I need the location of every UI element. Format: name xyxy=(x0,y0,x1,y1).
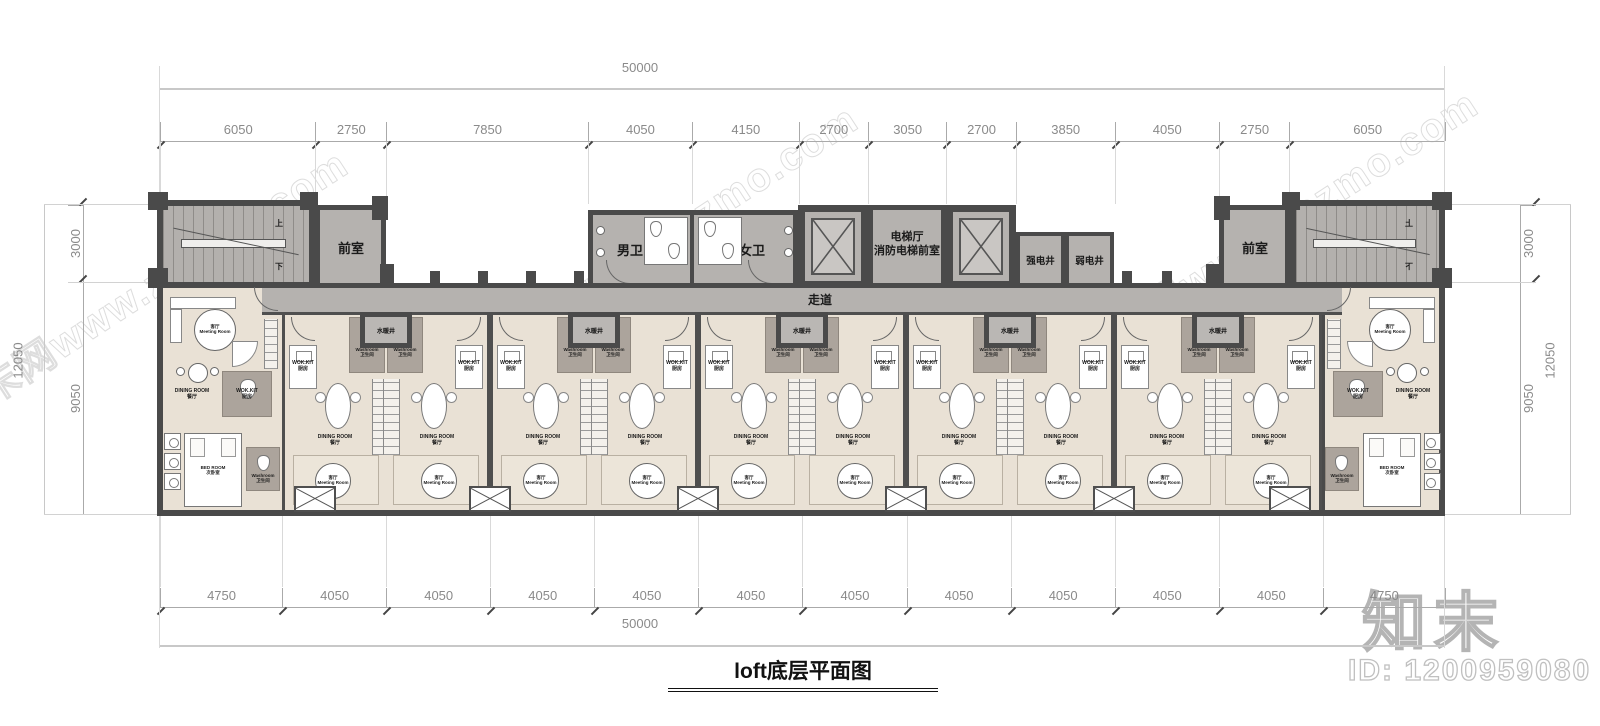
wc-sink xyxy=(596,226,605,235)
balcony-x-box xyxy=(1269,486,1311,512)
dining-table xyxy=(741,383,767,429)
plumbing-shaft-label: 水暖井 xyxy=(1209,326,1227,335)
dining-chair xyxy=(210,367,219,376)
washroom-pod xyxy=(246,447,280,491)
dining-table xyxy=(629,383,655,429)
dim-segment: 4050 xyxy=(1219,588,1323,607)
dim-segment: 4750 xyxy=(160,588,282,607)
washroom-label: Washroom 卫生间 xyxy=(387,347,423,357)
loft-stair-ladder xyxy=(1007,379,1024,455)
living-label: 客厅 Meeting Room xyxy=(731,475,767,485)
appliance-icon xyxy=(1424,433,1441,450)
loft-stair-ladder xyxy=(591,379,608,455)
plumbing-shaft-box: 水暖井 xyxy=(776,312,828,348)
door-arc xyxy=(1123,317,1147,341)
room-label-weak-electric: 弱电井 xyxy=(1065,253,1114,267)
washroom-label: Washroom 卫生间 xyxy=(765,347,801,357)
staircase-right: 上 下 xyxy=(1290,200,1445,288)
appliance-icon xyxy=(164,473,181,490)
brand-logo: 知末 xyxy=(1362,572,1506,664)
dim-segment: 2750 xyxy=(315,122,386,141)
living-label: 客厅 Meeting Room xyxy=(194,324,236,334)
dim-left-total-text: 12050 xyxy=(11,342,26,378)
dim-segment: 4050 xyxy=(386,588,490,607)
end-unit-right: 客厅 Meeting Room DINING ROOM 餐厅 WOK.KIT 厨… xyxy=(1323,283,1445,516)
floor-plan-canvas: 知末网www.znzmo.com 知末网www.znzmo.com 知末网www… xyxy=(0,0,1600,726)
kitchen-label: WOK.KIT 厨房 xyxy=(287,361,319,372)
dim-segment: 4050 xyxy=(588,122,692,141)
dim-col-right: 3000 9050 xyxy=(1520,205,1536,515)
dim-segment: 6050 xyxy=(160,122,315,141)
kitchen-label: WOK.KIT 厨房 xyxy=(453,361,485,372)
drawing-title: loft底层平面图 xyxy=(668,655,938,692)
dim-segment: 4050 xyxy=(282,588,386,607)
dining-label: DINING ROOM 餐厅 xyxy=(1025,435,1097,446)
sofa xyxy=(170,309,182,343)
lounge-chair xyxy=(1347,341,1373,367)
washroom-label: Washroom 卫生间 xyxy=(595,347,631,357)
washroom-label: Washroom 卫生间 xyxy=(1325,473,1359,483)
extension-line xyxy=(1444,516,1445,648)
dim-segment: 4050 xyxy=(594,588,698,607)
room-label-strong-electric: 强电井 xyxy=(1016,253,1065,267)
loft-stair-ladder xyxy=(383,379,400,455)
end-unit-left: 客厅 Meeting Room DINING ROOM 餐厅 WOK.KIT 厨… xyxy=(160,283,282,516)
dim-segment: 2750 xyxy=(1219,122,1290,141)
staircase-left: 上 下 xyxy=(157,200,315,288)
room-label-front-right: 前室 xyxy=(1222,238,1288,257)
elevator-x-icon xyxy=(961,220,1001,273)
connector-line xyxy=(68,282,158,283)
kitchen-label: WOK.KIT 厨房 xyxy=(661,361,693,372)
dim-right-total-text: 12050 xyxy=(1543,342,1558,378)
plumbing-shaft-label: 水暖井 xyxy=(1001,326,1019,335)
dim-right-total: 12050 xyxy=(1540,205,1560,515)
wc-sink xyxy=(784,226,793,235)
washroom-label: Washroom 卫生间 xyxy=(803,347,839,357)
dining-label: DINING ROOM 餐厅 xyxy=(1131,435,1203,446)
loft-stair-ladder xyxy=(799,379,816,455)
washroom-label: Washroom 卫生间 xyxy=(246,473,280,483)
wc-sink xyxy=(784,248,793,257)
dim-segment: 4750 xyxy=(1323,588,1445,607)
washroom-label: Washroom 卫生间 xyxy=(1011,347,1047,357)
dim-top-total-line xyxy=(160,88,1445,90)
dim-segment: 4150 xyxy=(692,122,799,141)
column xyxy=(300,192,318,210)
door-arc xyxy=(665,317,689,341)
connector-line xyxy=(1445,204,1571,205)
door-arc xyxy=(1081,317,1105,341)
extension-line xyxy=(1444,66,1445,204)
living-label: 客厅 Meeting Room xyxy=(1147,475,1183,485)
dining-label: DINING ROOM 餐厅 xyxy=(299,435,371,446)
dining-label: DINING ROOM 餐厅 xyxy=(507,435,579,446)
door-arc xyxy=(707,317,731,341)
extension-line xyxy=(159,66,160,204)
door-arc xyxy=(873,317,897,341)
living-label: 客厅 Meeting Room xyxy=(1045,475,1081,485)
appliance-icon xyxy=(164,453,181,470)
column xyxy=(1282,192,1300,210)
dim-segment: 9050 xyxy=(68,282,83,514)
dim-left-total-line xyxy=(44,205,45,515)
washroom-label: Washroom 卫生间 xyxy=(557,347,593,357)
dining-label: DINING ROOM 餐厅 xyxy=(715,435,787,446)
lounge-chair xyxy=(232,341,258,367)
column xyxy=(148,192,168,210)
door-arc xyxy=(915,317,939,341)
room-label-front-left: 前室 xyxy=(318,238,384,257)
dining-label: DINING ROOM 餐厅 xyxy=(1233,435,1305,446)
door-arc xyxy=(254,287,278,311)
dining-table xyxy=(421,383,447,429)
plumbing-shaft-box: 水暖井 xyxy=(568,312,620,348)
plumbing-shaft-label: 水暖井 xyxy=(585,326,603,335)
kitchen-label: WOK.KIT 厨房 xyxy=(1077,361,1109,372)
appliance-icon xyxy=(1424,453,1441,470)
dim-segment: 4050 xyxy=(907,588,1011,607)
living-label: 客厅 Meeting Room xyxy=(939,475,975,485)
dining-label: DINING ROOM 餐厅 xyxy=(923,435,995,446)
loft-stair-ladder xyxy=(264,319,278,369)
dining-table xyxy=(1253,383,1279,429)
bedroom-label: BED ROOM 次卧室 xyxy=(184,465,242,475)
dining-table xyxy=(949,383,975,429)
dim-segment: 3850 xyxy=(1016,122,1115,141)
appliance-icon xyxy=(164,433,181,450)
bedroom-label: BED ROOM 次卧室 xyxy=(1363,465,1421,475)
dining-chair xyxy=(1386,367,1395,376)
sofa xyxy=(170,297,236,309)
balcony-x-box xyxy=(294,486,336,512)
dim-segment: 2700 xyxy=(946,122,1015,141)
dining-table xyxy=(533,383,559,429)
dining-chair xyxy=(1420,367,1429,376)
dim-segment: 6050 xyxy=(1289,122,1444,141)
stair-up-label: 上 xyxy=(275,218,283,229)
connector-line xyxy=(44,514,158,515)
dim-segment: 3000 xyxy=(1521,205,1536,282)
dim-segment: 2700 xyxy=(799,122,868,141)
dim-row-bottom: 4750 4050 4050 4050 4050 4050 4050 4050 … xyxy=(160,588,1445,608)
kitchen-label: WOK.KIT 厨房 xyxy=(869,361,901,372)
dining-table xyxy=(1045,383,1071,429)
dim-segment: 4050 xyxy=(490,588,594,607)
room-label-elevator-hall: 电梯厅 消防电梯前室 xyxy=(847,230,967,258)
connector-line xyxy=(1445,514,1571,515)
washroom-pod xyxy=(1325,447,1359,491)
balcony-x-box xyxy=(677,486,719,512)
living-label: 客厅 Meeting Room xyxy=(629,475,665,485)
plumbing-shaft-box: 水暖井 xyxy=(360,312,412,348)
dim-segment: 4050 xyxy=(1011,588,1115,607)
dim-bottom-total-line xyxy=(160,645,1445,647)
dim-col-left: 3000 9050 xyxy=(68,205,84,515)
living-label: 客厅 Meeting Room xyxy=(1369,324,1411,334)
dining-label: DINING ROOM 餐厅 xyxy=(609,435,681,446)
washroom-label: Washroom 卫生间 xyxy=(1219,347,1255,357)
dining-table xyxy=(1397,363,1417,383)
stair-up-label: 上 xyxy=(1405,218,1413,229)
stair-down-label: 下 xyxy=(275,261,283,272)
living-label: 客厅 Meeting Room xyxy=(523,475,559,485)
kitchen-label: WOK.KIT 厨房 xyxy=(1285,361,1317,372)
loft-stair-ladder xyxy=(1215,379,1232,455)
dining-table xyxy=(1157,383,1183,429)
dim-segment: 4050 xyxy=(802,588,906,607)
stair-down-label: 下 xyxy=(1405,261,1413,272)
dim-segment: 4050 xyxy=(698,588,802,607)
balcony-x-box xyxy=(469,486,511,512)
dim-segment: 3000 xyxy=(68,205,83,282)
column xyxy=(1432,192,1452,210)
column xyxy=(1214,196,1230,220)
kitchen-label: WOK.KIT 厨房 xyxy=(1119,361,1151,372)
dim-left-total: 12050 xyxy=(8,205,28,515)
living-label: 客厅 Meeting Room xyxy=(315,475,351,485)
kitchen-label: WOK.KIT 厨房 xyxy=(1333,389,1383,400)
dim-segment: 7850 xyxy=(386,122,588,141)
plumbing-shaft-box: 水暖井 xyxy=(1192,312,1244,348)
kitchen-label: WOK.KIT 厨房 xyxy=(495,361,527,372)
dim-segment: 4050 xyxy=(1115,588,1219,607)
door-arc xyxy=(499,317,523,341)
dining-label: DINING ROOM 餐厅 xyxy=(401,435,473,446)
washroom-label: Washroom 卫生间 xyxy=(973,347,1009,357)
sofa xyxy=(1423,309,1435,343)
living-label: 客厅 Meeting Room xyxy=(421,475,457,485)
dim-segment: 3050 xyxy=(868,122,946,141)
balcony-x-box xyxy=(885,486,927,512)
appliance-icon xyxy=(1424,473,1441,490)
wc-divider-wall xyxy=(690,210,694,288)
dining-chair xyxy=(176,367,185,376)
plumbing-shaft-label: 水暖井 xyxy=(377,326,395,335)
room-label-corridor: 走道 xyxy=(780,291,860,308)
door-arc xyxy=(291,317,315,341)
connector-line xyxy=(44,204,158,205)
outer-wall-bottom xyxy=(157,510,1445,516)
dim-segment: 4050 xyxy=(1115,122,1219,141)
dim-bottom-total: 50000 xyxy=(595,616,685,631)
image-id: ID: 1200959080 xyxy=(1348,654,1591,688)
connector-line xyxy=(1445,282,1536,283)
wc-sink xyxy=(596,248,605,257)
dining-label: DINING ROOM 餐厅 xyxy=(162,389,222,400)
dim-row-top: 6050 2750 7850 4050 4150 2700 3050 2700 … xyxy=(160,122,1445,142)
door-arc xyxy=(457,317,481,341)
dining-label: DINING ROOM 餐厅 xyxy=(1383,389,1443,400)
living-label: 客厅 Meeting Room xyxy=(1253,475,1289,485)
column xyxy=(372,196,388,220)
kitchen-label: WOK.KIT 厨房 xyxy=(703,361,735,372)
dining-table xyxy=(325,383,351,429)
dim-right-total-line xyxy=(1570,205,1571,515)
balcony-x-box xyxy=(1093,486,1135,512)
dim-top-total: 50000 xyxy=(595,60,685,75)
dining-table xyxy=(188,363,208,383)
sofa xyxy=(1369,297,1435,309)
plumbing-shaft-label: 水暖井 xyxy=(793,326,811,335)
washroom-label: Washroom 卫生间 xyxy=(349,347,385,357)
door-arc xyxy=(1289,317,1313,341)
dim-segment: 9050 xyxy=(1521,282,1536,514)
living-label: 客厅 Meeting Room xyxy=(837,475,873,485)
plumbing-shaft-box: 水暖井 xyxy=(984,312,1036,348)
kitchen-label: WOK.KIT 厨房 xyxy=(222,389,272,400)
extension-line xyxy=(159,516,160,648)
kitchen-label: WOK.KIT 厨房 xyxy=(911,361,943,372)
dining-label: DINING ROOM 餐厅 xyxy=(817,435,889,446)
washroom-label: Washroom 卫生间 xyxy=(1181,347,1217,357)
dining-table xyxy=(837,383,863,429)
loft-stair-ladder xyxy=(1327,319,1341,369)
door-arc xyxy=(1327,287,1351,311)
